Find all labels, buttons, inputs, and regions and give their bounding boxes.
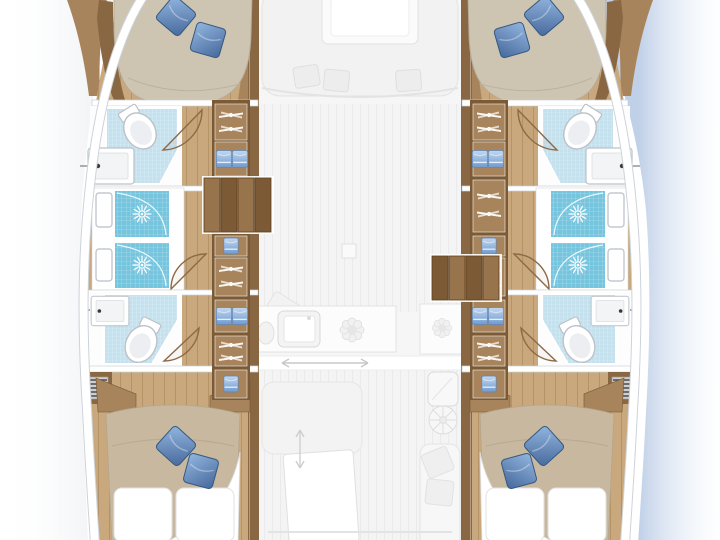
step-tread [204, 178, 220, 232]
helm-wheel-icon [429, 406, 457, 434]
wardrobe [215, 258, 247, 296]
step-tread [466, 256, 482, 300]
floor-plan-svg [0, 0, 720, 540]
aft-head [80, 292, 199, 368]
wardrobe [215, 104, 247, 140]
seat-cushion [395, 69, 421, 92]
companionway-steps-starboard [430, 254, 502, 302]
stove-burner-icon [432, 318, 451, 337]
vanity-unit [96, 249, 112, 281]
companionway-steps-port [202, 176, 274, 234]
towel-icon [216, 308, 231, 325]
galley [258, 304, 464, 354]
galley-sink-basin [284, 316, 315, 342]
stove-burner-icon [340, 318, 364, 342]
seat-cushion [293, 64, 321, 89]
chaise-pillow [425, 479, 454, 507]
step-tread [432, 256, 448, 300]
floor-plan-stage: Catamaran yacht interior layout plan — 4… [0, 0, 720, 540]
towel-icon [216, 151, 231, 168]
vanity-unit [96, 193, 112, 227]
wetbar-sink [428, 372, 458, 406]
mini-appliance [258, 322, 274, 344]
seat-cushion [323, 69, 350, 92]
utility-box [342, 244, 356, 258]
towel-icon [224, 376, 238, 392]
cockpit-bench [262, 382, 362, 454]
washbasin [91, 296, 129, 326]
white-berth-pillow [114, 488, 172, 540]
step-tread [449, 256, 465, 300]
towel-icon [232, 308, 247, 325]
step-tread [255, 178, 271, 232]
step-tread [238, 178, 254, 232]
port-hull [64, 0, 259, 540]
towel-icon [232, 151, 247, 168]
white-berth-pillow [176, 488, 234, 540]
galley-faucet-icon [307, 316, 311, 320]
step-tread [483, 256, 499, 300]
cockpit-table [283, 450, 359, 540]
step-tread [221, 178, 237, 232]
saloon-table-top [331, 0, 409, 36]
wardrobe [215, 336, 247, 366]
corridor-storage-column [212, 100, 250, 400]
towel-icon [224, 238, 238, 254]
